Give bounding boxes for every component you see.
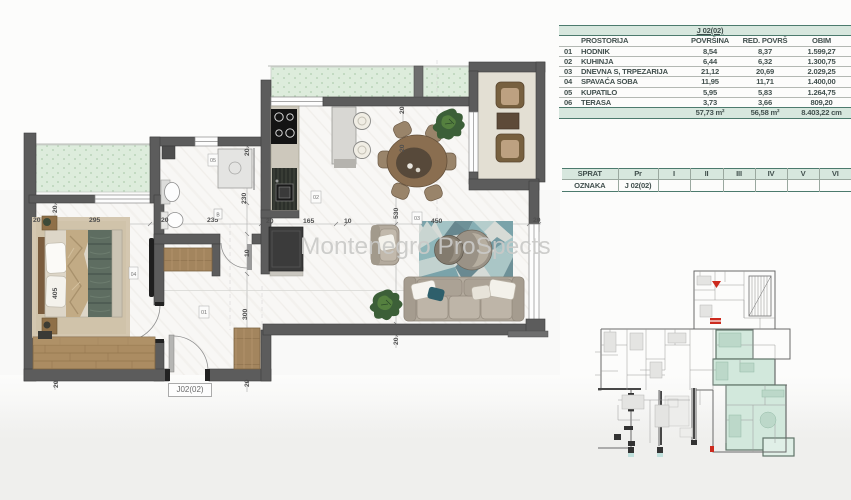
svg-text:20: 20 [244,379,251,387]
svg-text:295: 295 [89,217,101,224]
svg-text:03: 03 [414,216,420,222]
svg-text:20: 20 [161,217,169,224]
svg-text:20: 20 [266,218,274,225]
svg-text:530: 530 [393,207,400,219]
svg-text:300: 300 [242,308,249,320]
svg-text:165: 165 [303,218,315,225]
svg-text:10: 10 [244,249,251,257]
svg-text:450: 450 [431,218,443,225]
svg-text:20: 20 [244,148,251,156]
svg-text:01: 01 [201,310,207,316]
svg-text:20: 20 [533,217,541,224]
svg-text:20: 20 [399,144,406,152]
svg-text:20: 20 [52,205,59,213]
svg-text:20: 20 [33,217,41,224]
svg-text:230: 230 [241,192,248,204]
svg-text:02: 02 [313,195,319,201]
svg-text:20: 20 [393,337,400,345]
svg-text:05: 05 [210,158,216,164]
svg-text:405: 405 [52,287,59,299]
svg-text:20: 20 [399,106,406,114]
svg-text:10: 10 [344,218,352,225]
svg-text:04: 04 [131,272,137,278]
svg-text:20: 20 [53,380,60,388]
